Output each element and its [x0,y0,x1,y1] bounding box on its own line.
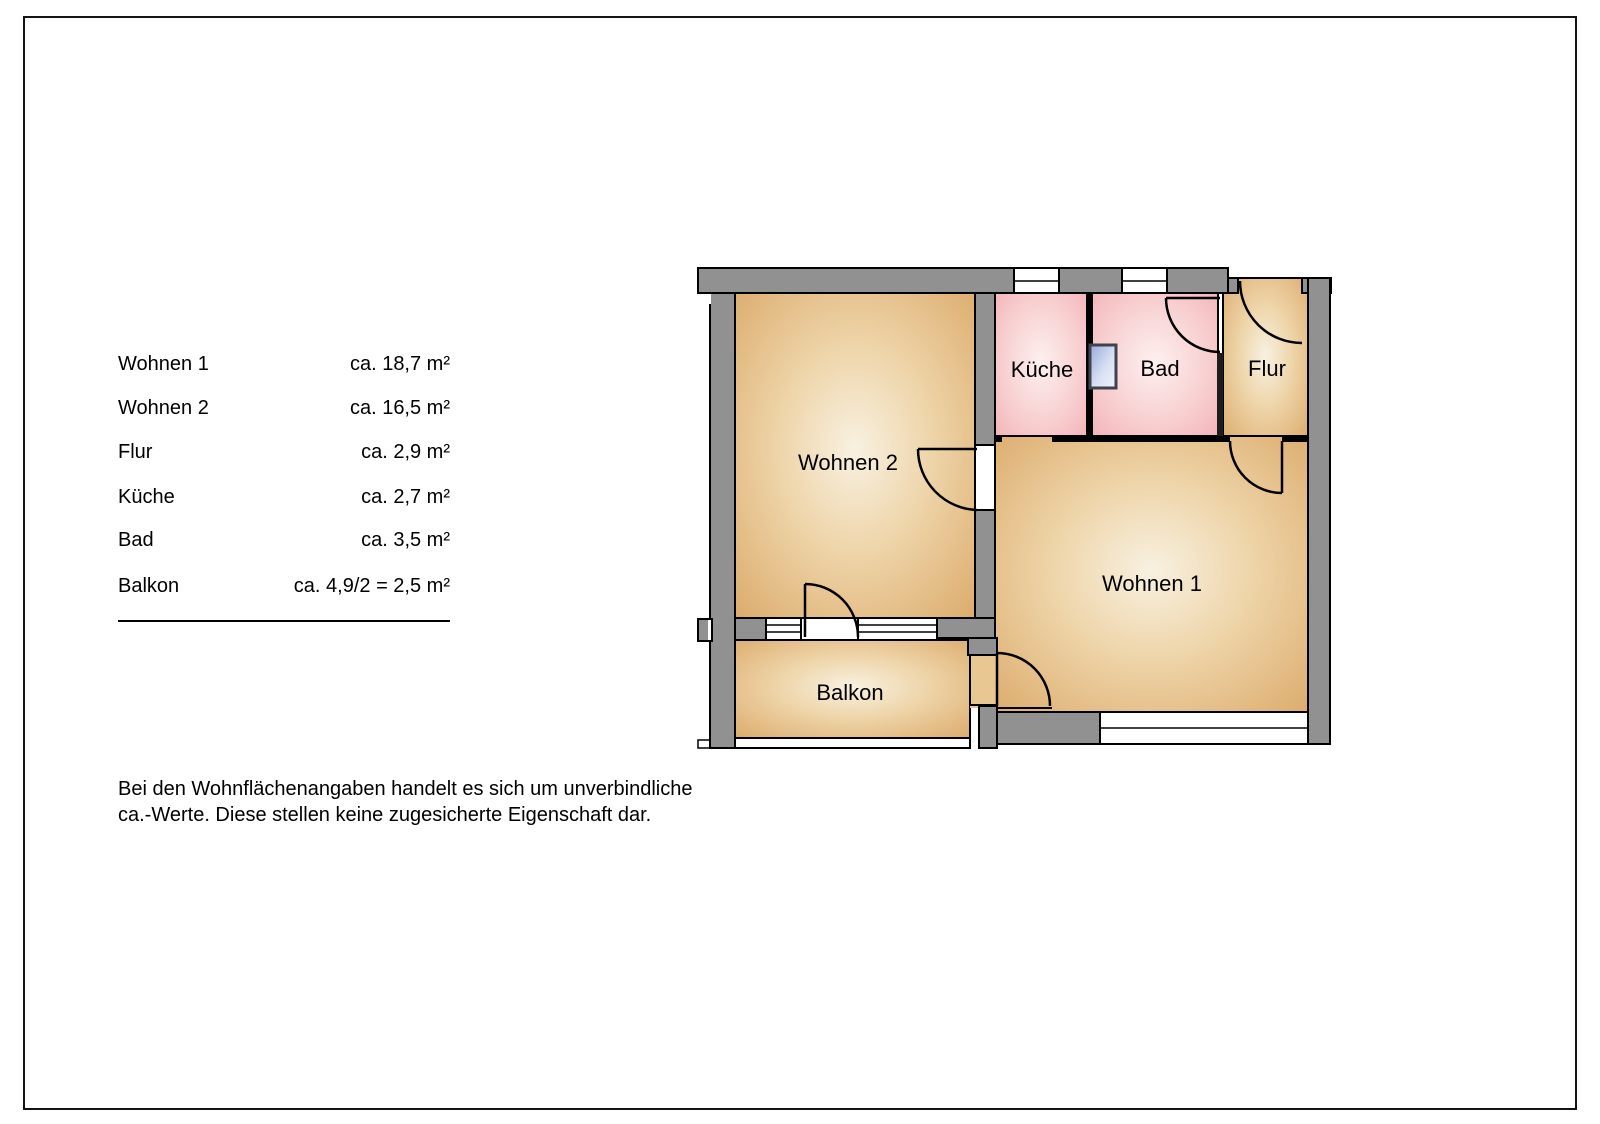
wall-wohnen2-bottom-left [735,618,766,640]
wall-seg [1282,436,1308,442]
legend-label: Küche [118,485,175,509]
legend-label: Flur [118,440,152,464]
legend-value: ca. 18,7 m² [350,352,450,376]
wall-wohnen2-bottom-right [937,618,995,638]
wall-wohnen2-right-lower [975,510,995,618]
wall-bad-flur [1217,353,1223,441]
legend-row: Wohnen 1 ca. 18,7 m² [118,352,450,376]
window-balkon-1 [766,618,801,640]
legend-value: ca. 3,5 m² [361,528,450,552]
glass-panel [1090,345,1116,388]
wall-balkon-corner [979,706,997,748]
wall-balkon-step [968,638,997,655]
wall-break-mark [703,294,711,304]
legend-row: Küche ca. 2,7 m² [118,485,450,509]
wall-wohnen2-right-upper [975,293,995,445]
label-balkon: Balkon [816,680,883,705]
wall-seg [995,436,1002,442]
label-flur: Flur [1248,356,1286,381]
wall-left [710,293,735,748]
wall-top-step [1228,278,1238,293]
legend-row: Flur ca. 2,9 m² [118,440,450,464]
legend-label: Bad [118,528,154,552]
balcony-railing [698,738,970,748]
legend-value: ca. 16,5 m² [350,396,450,420]
wall-right [1308,278,1330,744]
disclaimer-text: Bei den Wohnflächenangaben handelt es si… [118,776,692,828]
label-wohnen2: Wohnen 2 [798,450,898,475]
room-floors [735,278,1308,738]
wall-wohnen1-bottom [997,712,1100,744]
wall-break-mark [708,620,711,640]
wall-seg [1052,436,1230,442]
legend-value: ca. 4,9/2 = 2,5 m² [294,574,450,598]
legend-label: Wohnen 1 [118,352,209,376]
disclaimer-line2: ca.-Werte. Diese stellen keine zugesiche… [118,802,692,828]
legend-row: Wohnen 2 ca. 16,5 m² [118,396,450,420]
legend-label: Balkon [118,574,179,598]
legend-row: Balkon ca. 4,9/2 = 2,5 m² [118,574,450,598]
label-bad: Bad [1140,356,1179,381]
legend-label: Wohnen 2 [118,396,209,420]
legend-value: ca. 2,9 m² [361,440,450,464]
balkon-door-threshold [801,618,858,640]
label-wohnen1: Wohnen 1 [1102,571,1202,596]
disclaimer-line1: Bei den Wohnflächenangaben handelt es si… [118,776,692,802]
window-balkon-2 [858,618,937,640]
balkon-passage-floor [970,655,997,708]
legend-value: ca. 2,7 m² [361,485,450,509]
legend-row: Bad ca. 3,5 m² [118,528,450,552]
page: Wohnen 1 ca. 18,7 m² Wohnen 2 ca. 16,5 m… [0,0,1600,1124]
label-kueche: Küche [1011,357,1073,382]
floorplan: Wohnen 2 Küche Bad Flur Wohnen 1 Balkon [680,250,1340,765]
legend-divider [118,620,450,622]
